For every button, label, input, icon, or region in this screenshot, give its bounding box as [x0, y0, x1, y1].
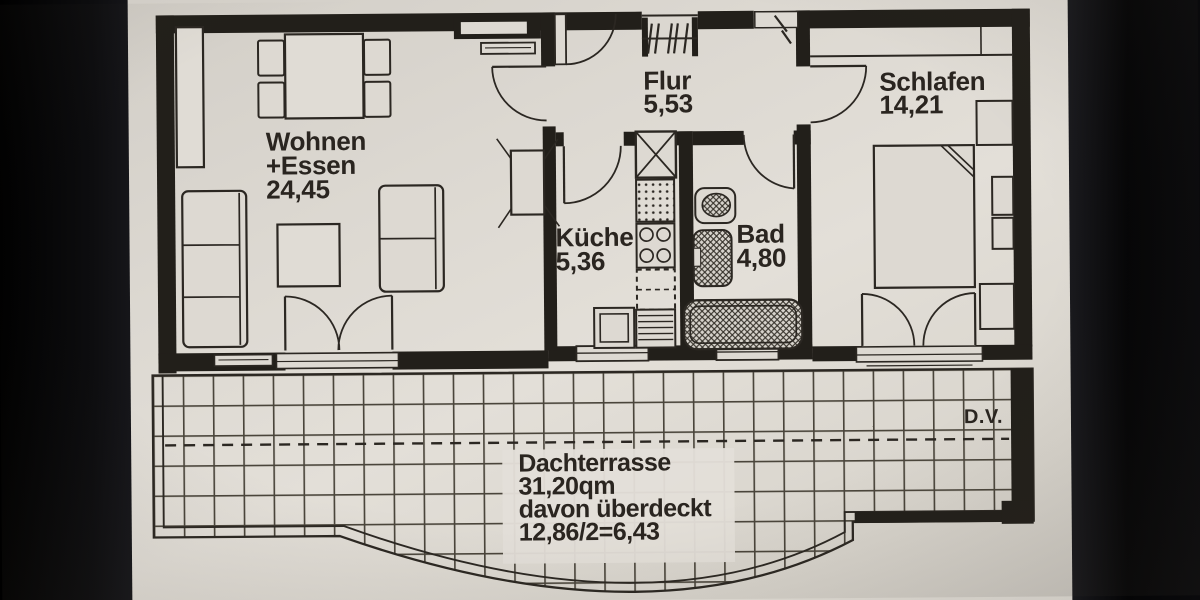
- sofa-large: [182, 191, 247, 347]
- terrace-bottom-right-parapet: [855, 511, 1014, 523]
- hall-coat-rack: [642, 15, 698, 56]
- bathtub: [684, 299, 802, 349]
- room-area: 5,36: [556, 249, 634, 274]
- photo-tilt-wrapper: Wohnen +Essen 24,45 Flur 5,53 Schlafen 1…: [0, 0, 1200, 600]
- counter-segment: [636, 179, 674, 221]
- stove: [636, 223, 674, 267]
- roof-edge-marker: D.V.: [964, 406, 1003, 429]
- toilet: [695, 188, 735, 223]
- bath-door: [744, 134, 794, 188]
- room-area: 4,80: [737, 246, 787, 270]
- room-area: 14,21: [879, 93, 985, 117]
- bed: [874, 145, 975, 288]
- room-area: 24,45: [266, 177, 366, 202]
- room-label-wohnen: Wohnen +Essen 24,45: [266, 129, 367, 202]
- floorplan-photo: Wohnen +Essen 24,45 Flur 5,53 Schlafen 1…: [0, 0, 1200, 600]
- built-in-wardrobe: [810, 27, 1012, 57]
- nightstand: [980, 284, 1014, 329]
- room-label-schlafen: Schlafen 14,21: [879, 70, 985, 117]
- room-label-flur: Flur 5,53: [643, 69, 693, 115]
- sofa-small: [379, 185, 444, 291]
- sideboard: [176, 27, 204, 167]
- terrace-corner-block: [1002, 501, 1034, 524]
- balcony-door-living: [285, 296, 392, 351]
- dining-table-set: [258, 34, 391, 119]
- shaft-x: [636, 131, 676, 177]
- coffee-table: [277, 224, 339, 286]
- room-label-kueche: Küche 5,36: [555, 225, 633, 274]
- dining-table: [285, 34, 364, 119]
- living-room-door: [492, 66, 546, 120]
- room-area: 5,53: [643, 92, 693, 115]
- terrace-right-parapet: [1011, 369, 1034, 515]
- side-table: [992, 218, 1013, 249]
- drainer-unit: [636, 309, 675, 347]
- kitchen-sink: [594, 308, 634, 348]
- terrace-label: Dachterrasse 31,20qm davon überdeckt 12,…: [518, 451, 711, 545]
- terrace-covered-value: 12,86/2=6,43: [519, 520, 712, 545]
- entrance-door: [755, 11, 798, 43]
- room-label-bad: Bad 4,80: [736, 222, 786, 270]
- side-table: [992, 177, 1013, 215]
- base-cabinet-dashed: [637, 269, 675, 309]
- wall-cabinet: [454, 16, 541, 54]
- bathroom-sink: [693, 230, 731, 286]
- bedroom-door: [810, 66, 866, 122]
- kitchen-door: [564, 146, 621, 203]
- balcony-door-bedroom: [862, 293, 975, 346]
